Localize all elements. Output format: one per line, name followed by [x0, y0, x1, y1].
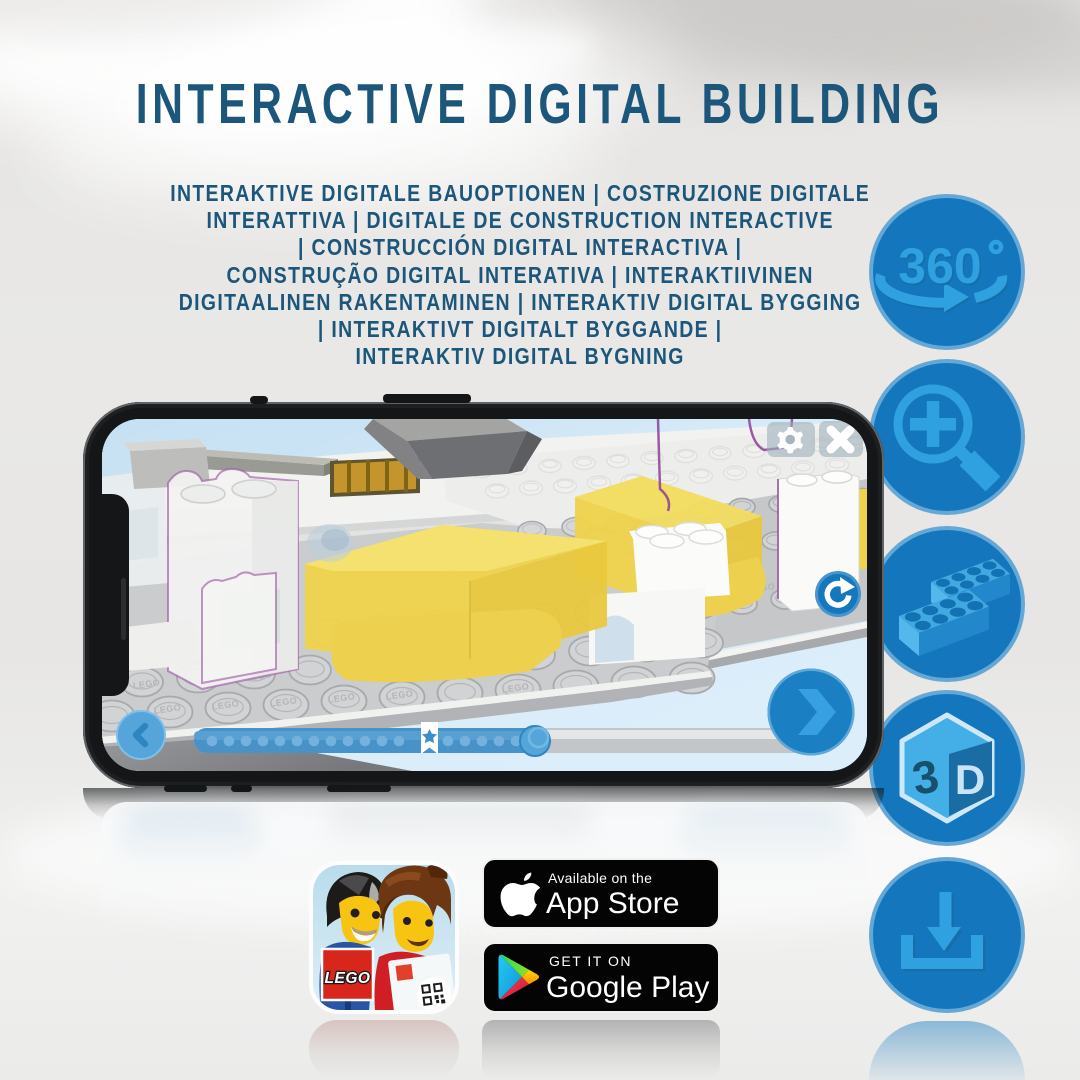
svg-text:LEGO: LEGO: [325, 970, 371, 987]
svg-text:D: D: [955, 756, 985, 803]
svg-text:360: 360: [898, 238, 981, 294]
